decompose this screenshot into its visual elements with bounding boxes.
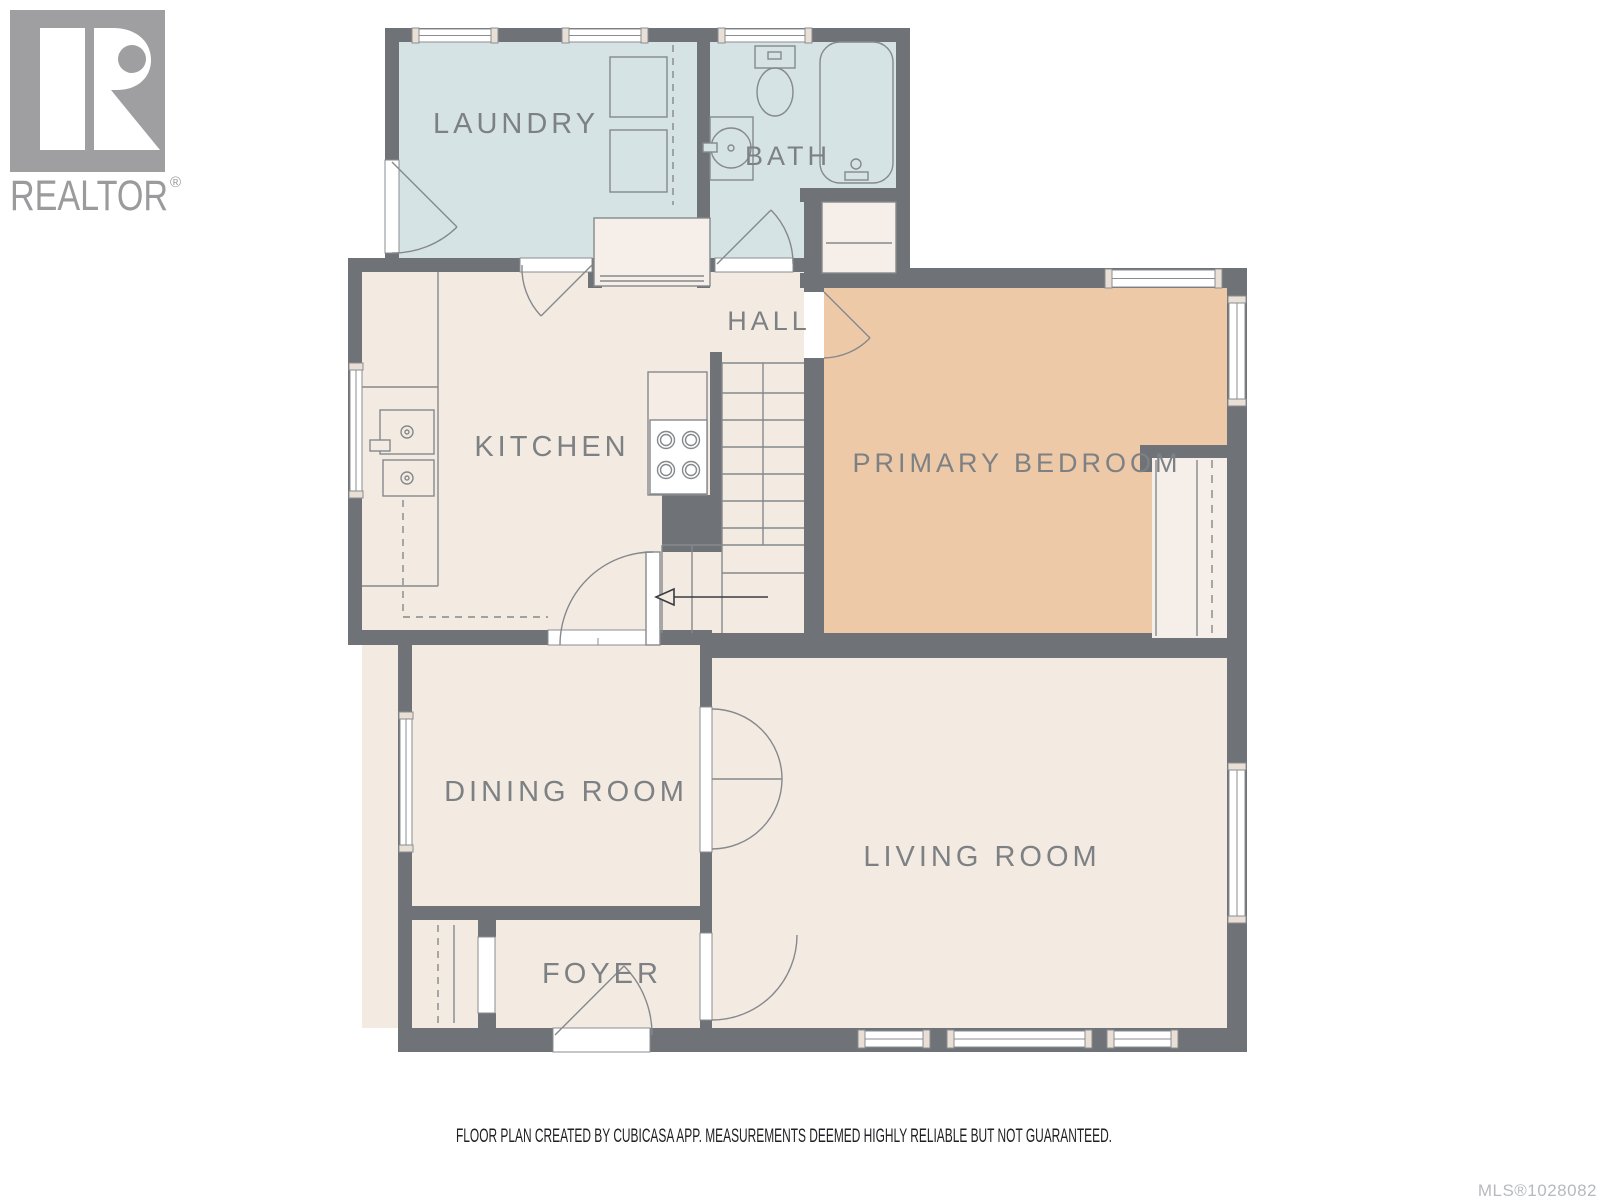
foyer-label: FOYER xyxy=(542,958,662,990)
mls-number: MLS®1028082 xyxy=(1478,1181,1597,1200)
room-fills xyxy=(362,42,1227,1028)
dining-room-label: DINING ROOM xyxy=(444,776,688,808)
bath-label: BATH xyxy=(745,141,831,171)
laundry-label: LAUNDRY xyxy=(433,108,599,140)
window-laundry-1 xyxy=(412,28,498,43)
floor-plan-page: REALTOR ® xyxy=(0,0,1600,1200)
linen-closet xyxy=(822,202,896,273)
window-living-bottom-3 xyxy=(1107,1030,1178,1048)
realtor-logo-registered-icon: ® xyxy=(170,174,181,191)
stove-icon xyxy=(648,372,707,495)
primary-bedroom-label: PRIMARY BEDROOM xyxy=(852,448,1181,478)
window-bath xyxy=(718,28,812,43)
window-living-right xyxy=(1228,763,1246,923)
realtor-logo-text: REALTOR xyxy=(10,172,168,220)
bedroom-closet xyxy=(1152,458,1227,638)
floor-plan-canvas: REALTOR ® xyxy=(0,0,1600,1200)
hall-closet xyxy=(594,218,710,286)
window-bedroom-right xyxy=(1228,296,1246,406)
window-dining-left xyxy=(399,712,413,852)
kitchen-label: KITCHEN xyxy=(474,431,629,463)
window-kitchen-left xyxy=(349,363,363,498)
living-room-label: LIVING ROOM xyxy=(863,841,1100,873)
hall-label: HALL xyxy=(727,306,811,336)
window-living-bottom-2 xyxy=(947,1030,1092,1048)
window-living-bottom-1 xyxy=(858,1030,930,1048)
realtor-logo: REALTOR ® xyxy=(10,10,181,220)
disclaimer-text: FLOOR PLAN CREATED BY CUBICASA APP. MEAS… xyxy=(456,1126,1112,1147)
window-laundry-2 xyxy=(562,28,648,43)
footer: FLOOR PLAN CREATED BY CUBICASA APP. MEAS… xyxy=(456,1126,1597,1200)
window-bedroom-top xyxy=(1105,269,1222,288)
realtor-logo-icon xyxy=(10,10,165,172)
